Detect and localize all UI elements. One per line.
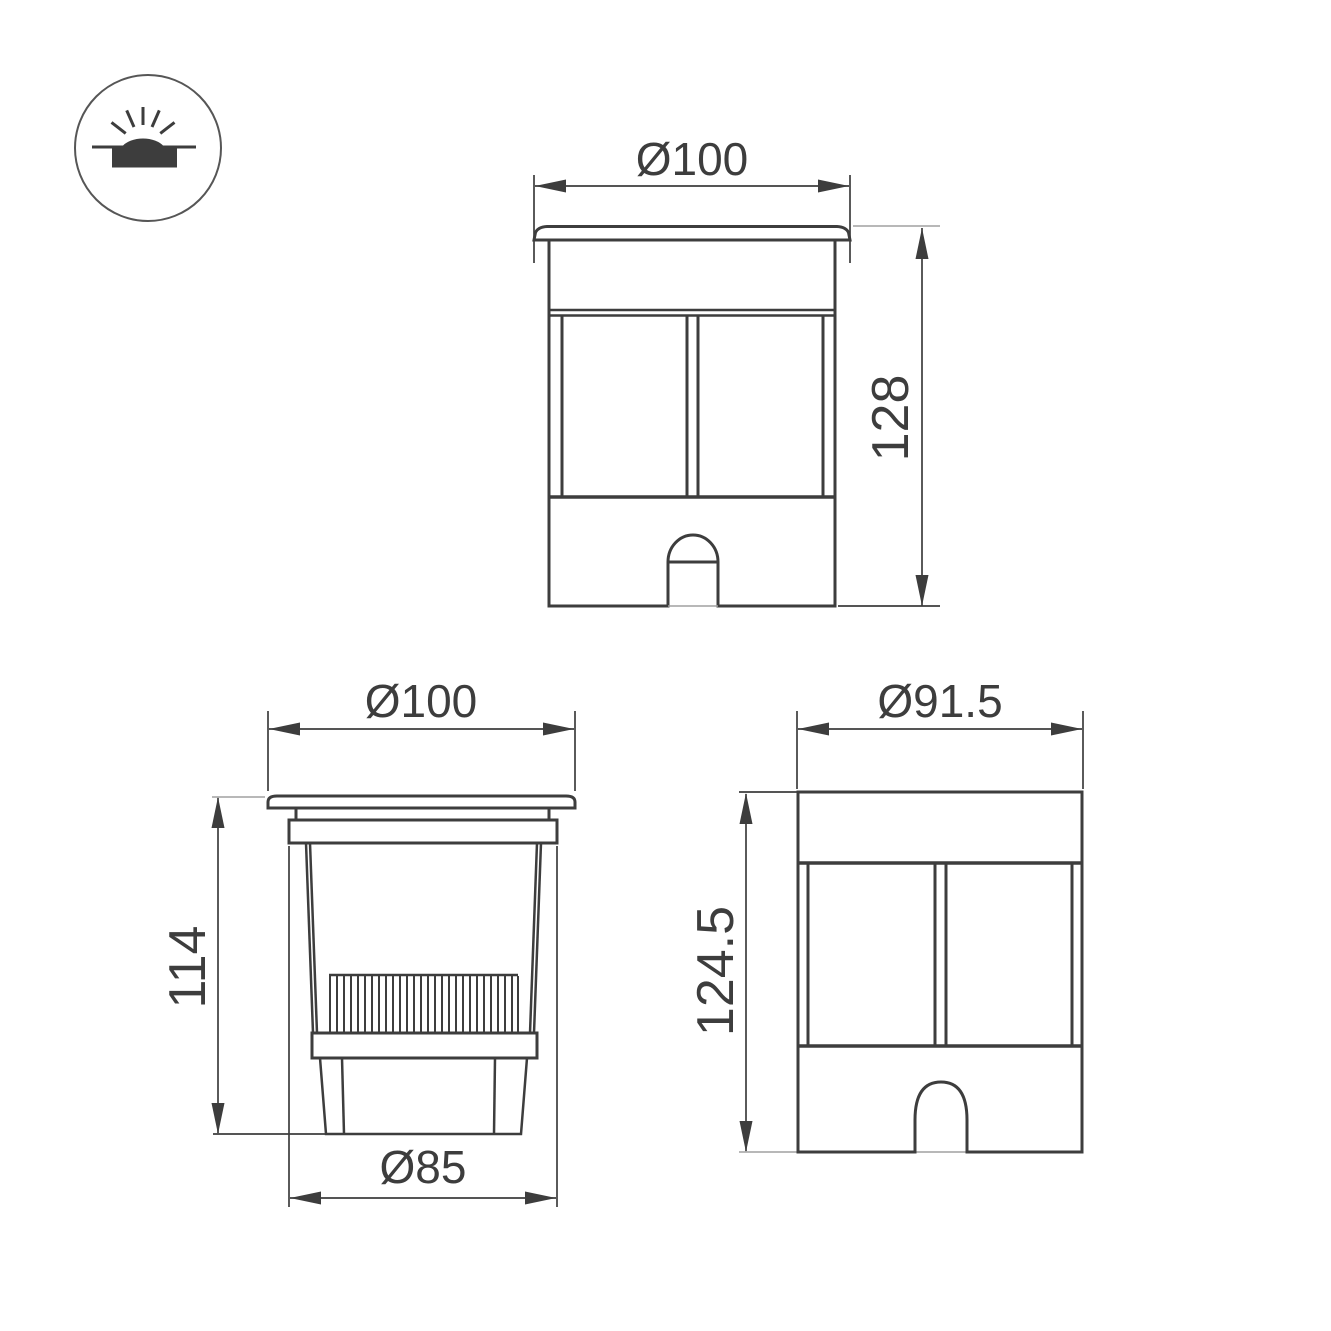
heatsink-fins [329, 975, 518, 1032]
arrowhead-bottom [740, 1121, 753, 1152]
dimension-label: Ø100 [365, 675, 478, 727]
dimension-front-height: 128 [838, 226, 940, 606]
arrowhead-left [798, 723, 829, 736]
arrowhead-left [290, 1192, 321, 1205]
front-view: Ø100 128 [534, 133, 940, 606]
arrowhead-left [535, 180, 566, 193]
dimension-section-diameter: Ø100 [268, 675, 575, 791]
arrowhead-right [818, 180, 849, 193]
driver-plate-outline [312, 1033, 537, 1058]
dimension-label: 124.5 [687, 906, 745, 1036]
lamp-dome-icon [122, 139, 164, 147]
housing-outline [798, 792, 1082, 1152]
frame-ring-outline [289, 820, 557, 843]
rear-base-left-inner [342, 1058, 344, 1134]
flange-outline [268, 796, 575, 808]
recessed-light-icon [75, 75, 221, 221]
flange-outline [534, 227, 850, 241]
drawing-canvas: Ø100 128 [0, 0, 1331, 1331]
arrowhead-right [525, 1192, 556, 1205]
dimension-section-height: 114 [159, 797, 327, 1134]
dimension-label: 114 [159, 926, 217, 1009]
dimension-label: 128 [862, 375, 920, 462]
collar-outline [296, 808, 549, 820]
arrowhead-top [916, 228, 929, 259]
arrowhead-bottom [212, 1103, 225, 1134]
recessed-body-icon [112, 149, 177, 168]
dimension-front-diameter: Ø100 [534, 133, 850, 263]
arrowhead-right [1051, 723, 1082, 736]
arrowhead-bottom [916, 575, 929, 606]
dimension-label: Ø100 [636, 133, 749, 185]
dimension-housing-diameter: Ø91.5 [797, 675, 1083, 789]
arrowhead-top [212, 797, 225, 828]
housing-view: Ø91.5 124.5 [687, 675, 1083, 1152]
light-rays-icon [112, 107, 175, 133]
dimension-label: Ø91.5 [877, 675, 1002, 727]
housing-outline [549, 240, 835, 606]
section-view: Ø100 114 Ø85 [159, 675, 575, 1207]
arrowhead-top [740, 793, 753, 824]
dimension-housing-height: 124.5 [687, 792, 797, 1152]
arrowhead-left [269, 723, 300, 736]
rear-base-right-inner [494, 1058, 495, 1134]
technical-drawing-sheet: Ø100 128 [0, 0, 1331, 1331]
arrowhead-right [543, 723, 574, 736]
dimension-label: Ø85 [380, 1141, 467, 1193]
